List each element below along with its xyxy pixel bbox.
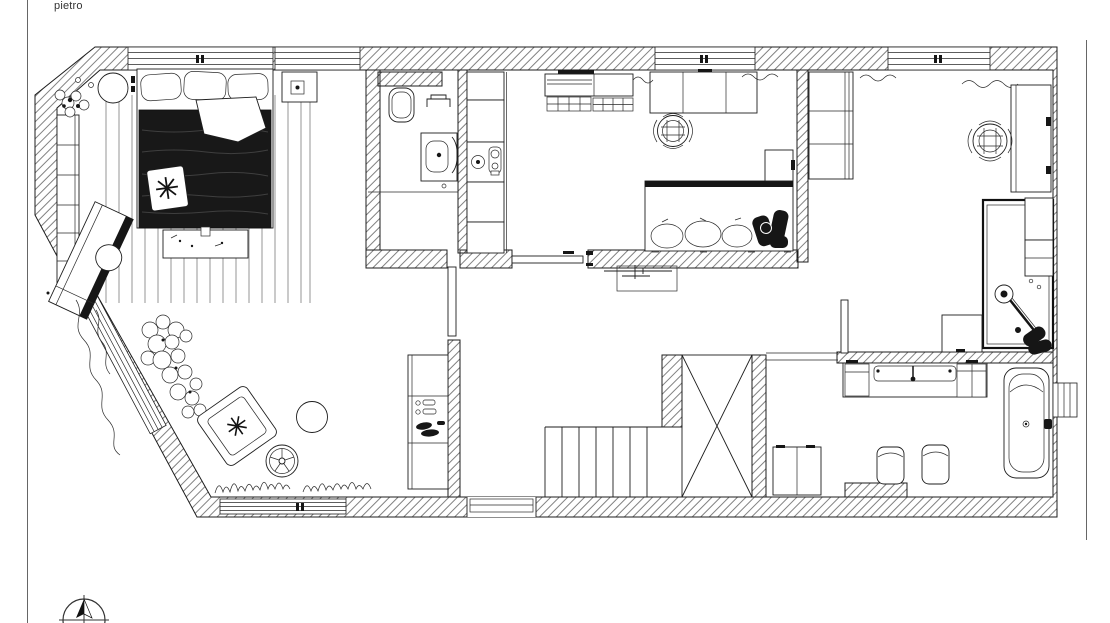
drawing-sheet: pietro [0,0,1110,623]
floor-drain [442,184,446,188]
spoke-wheel-table [266,445,298,477]
lounge-armchair [195,384,279,468]
round-side-table [98,73,128,103]
shoe-cabinet [408,355,448,489]
staircase [545,355,752,497]
window-bottom-wall [220,499,346,514]
star-cushion [146,166,188,212]
washbasin-vanity [421,133,457,181]
bathroom-door-leaf [448,267,456,336]
sliding-door [512,251,593,266]
toilet [389,88,414,122]
entry-door-threshold [467,497,536,517]
study-wardrobe [809,72,853,179]
window-right-wall [1053,383,1077,417]
dining-table [650,69,757,113]
rattan-chair [654,114,693,149]
round-garden-table [297,402,328,433]
compass-north-arrow [59,595,109,623]
door-jamb-stub [841,300,848,353]
window-top-2 [275,47,360,70]
kitchen-counter [545,70,633,112]
study-side-cabinet [942,315,982,352]
bath2-stools [877,445,949,484]
floor-plan-drawing [0,0,1110,623]
bathtub [1004,368,1052,478]
window-top-4 [888,47,990,70]
grass-tufts [215,482,371,493]
overbed-shelving [1025,198,1053,289]
window-top-1 [128,47,273,70]
window-top-3 [655,47,755,70]
bed-foot-bench [163,227,248,258]
rattan-armchair [968,121,1012,161]
door-opening-lintel [766,353,838,360]
corner-sofa [645,181,793,252]
nightstand-with-lamp [282,72,317,102]
console-table [604,265,677,291]
sofa-side-table [765,150,795,181]
bath2-vanity [843,360,987,397]
bath2-storage-cabinet [773,445,821,495]
study-desk [1011,85,1051,192]
double-bed [131,69,273,228]
towel-rail [427,95,450,107]
utility-cabinet-column [467,72,507,253]
